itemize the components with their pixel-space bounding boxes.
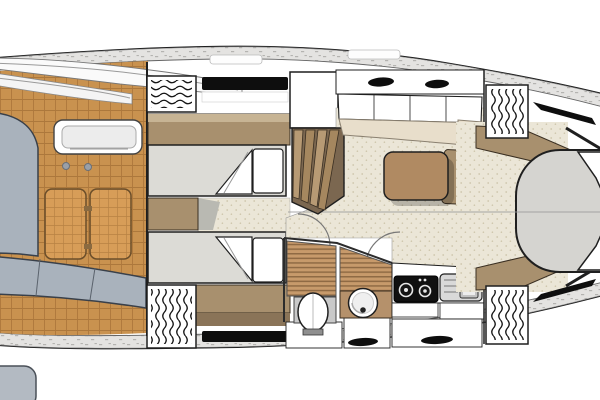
- table-leaf-right: [90, 189, 131, 259]
- burner-center: [404, 288, 408, 292]
- stern-platform: [0, 366, 36, 400]
- pillow: [253, 238, 283, 282]
- louvre-hatch-bow-lower: [486, 286, 528, 344]
- hull-window-bottom: [202, 331, 289, 342]
- galley-cabinet: [440, 303, 484, 319]
- hatch-louvres-icon: [151, 80, 192, 108]
- louvre-hatch-bow-upper: [486, 85, 528, 138]
- island-berth: [516, 150, 600, 272]
- burner-center: [423, 289, 427, 293]
- hatch-louvres-icon: [490, 290, 524, 340]
- cup-holder: [63, 163, 70, 170]
- round-basin: [349, 289, 378, 318]
- window-ledge: [202, 92, 288, 102]
- faucet-icon: [360, 307, 366, 313]
- companionway-stairs: [292, 128, 344, 214]
- cockpit-sofa-back: [0, 112, 38, 256]
- wet-bar-sink: [54, 120, 142, 154]
- headboard-highlight: [148, 114, 290, 122]
- twin-berth-lower: [148, 232, 286, 283]
- cup-holder: [85, 164, 92, 171]
- dinette-table: [384, 152, 448, 200]
- hatch-louvres-icon: [490, 89, 524, 134]
- table-leaf-left: [45, 189, 86, 259]
- footboard-cabinet: [196, 285, 290, 313]
- footboard-cabinet-dark: [196, 313, 290, 326]
- galley-cabinet: [392, 303, 438, 317]
- sink-basin: [62, 126, 136, 148]
- overhead-locker-band: [336, 70, 484, 94]
- toilet-base: [303, 329, 323, 335]
- twin-berth-upper: [148, 145, 286, 196]
- teak-grate-floor: [287, 241, 336, 296]
- deck-hatch: [348, 50, 400, 59]
- table-latch: [84, 244, 92, 249]
- yacht-deck-plan: [0, 0, 600, 400]
- louvre-hatch-upper: [147, 76, 196, 112]
- table-latch: [84, 206, 92, 211]
- deck-hatch: [210, 55, 262, 64]
- louvre-hatch-lower: [147, 285, 196, 348]
- wardrobe: [290, 72, 338, 128]
- pillow: [253, 149, 283, 193]
- nightstand-cabinet: [148, 198, 198, 230]
- cooktop-knob: [419, 279, 422, 282]
- cooktop-knob: [424, 279, 427, 282]
- hull-window-top: [202, 77, 288, 90]
- floorplan-canvas: [0, 0, 600, 400]
- hatch-louvres-icon: [151, 289, 192, 344]
